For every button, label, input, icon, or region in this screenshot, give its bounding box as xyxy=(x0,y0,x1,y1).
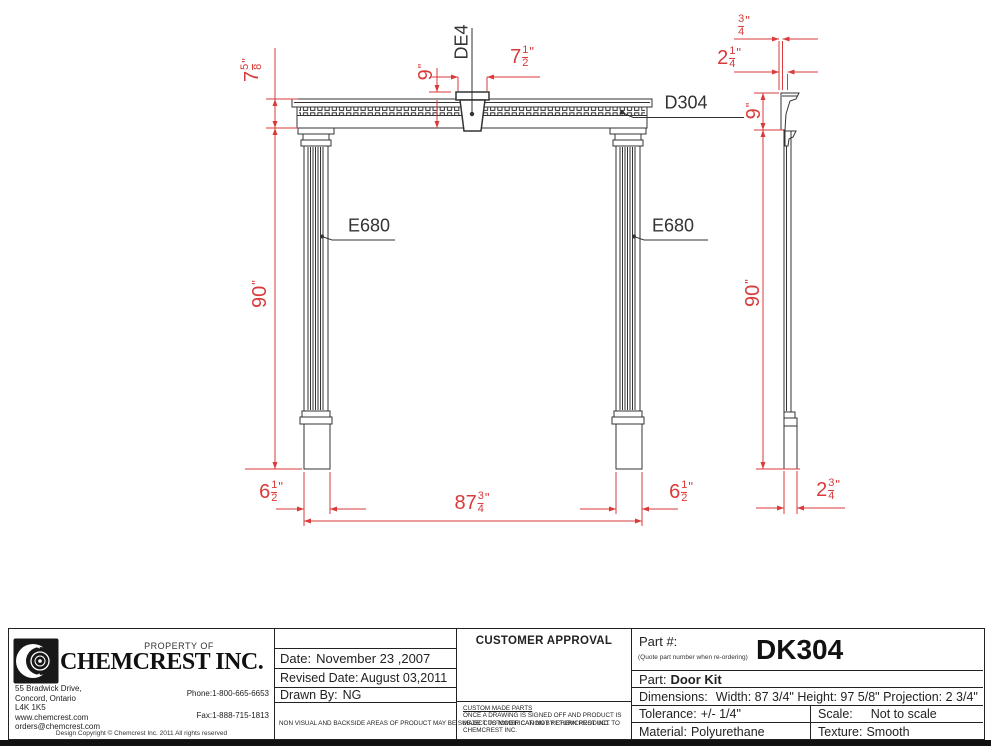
part-name-value: Door Kit xyxy=(670,672,721,687)
dim-side-top-offset: 34 " xyxy=(738,14,750,38)
company-phone: Phone:1-800-665-6653 xyxy=(187,689,269,698)
dim-plinth-width-right: 6 12 " xyxy=(669,480,693,504)
scale-value: Not to scale xyxy=(871,707,937,721)
dimensions-label: Dimensions: xyxy=(639,690,708,704)
texture-value: Smooth xyxy=(866,725,909,739)
company-panel: PROPERTY OF CHEMCREST INC. 55 Bradwick D… xyxy=(9,629,275,739)
dim-overall-width: 87 34 " xyxy=(455,491,490,515)
company-website: www.chemcrest.com xyxy=(15,713,100,723)
tolerance-scale-row: Tolerance: +/- 1/4" Scale: Not to scale xyxy=(632,705,983,722)
side-profile xyxy=(781,93,799,469)
texture-label: Texture: xyxy=(818,725,862,739)
dim-pilaster-height-front: 90 " xyxy=(250,280,270,308)
revised-date-row: Revised Date: August 03,2011 xyxy=(275,668,456,687)
custom-made-parts-text: ONCE A DRAWING IS SIGNED OFF AND PRODUCT… xyxy=(463,712,627,734)
title-block: PROPERTY OF CHEMCREST INC. 55 Bradwick D… xyxy=(8,628,985,740)
dim-side-projection: 2 34 " xyxy=(816,478,840,502)
material-label: Material: xyxy=(639,725,687,739)
company-name: CHEMCREST INC. xyxy=(60,649,263,676)
chemcrest-logo-icon xyxy=(13,638,59,684)
dim-side-crown-projection: 2 14 " xyxy=(717,46,741,70)
dim-pilaster-height-side: 90 " xyxy=(743,279,763,307)
label-keystone-de4: DE4 xyxy=(452,24,473,59)
customer-approval-panel: CUSTOMER APPROVAL CUSTOM MADE PARTS ONCE… xyxy=(457,629,632,739)
part-number-value: DK304 xyxy=(756,634,843,666)
drawn-by-label: Drawn By: xyxy=(280,688,338,702)
label-pilaster-e680-left: E680 xyxy=(348,216,390,237)
material-texture-row: Material: Polyurethane Texture: Smooth xyxy=(632,722,983,740)
revised-date-value: August 03,2011 xyxy=(361,671,448,685)
dim-keystone-width: 7 12 " xyxy=(510,45,534,69)
dim-plinth-width-left: 6 12 " xyxy=(259,480,283,504)
part-number-label: Part #: xyxy=(639,634,677,649)
dim-keystone-height: 9 " xyxy=(416,64,436,81)
scale-label: Scale: xyxy=(818,707,853,721)
dates-panel: Date: November 23 ,2007 Revised Date: Au… xyxy=(275,629,457,739)
custom-made-parts-title: CUSTOM MADE PARTS xyxy=(463,705,627,712)
date-label: Date: xyxy=(280,651,311,666)
tolerance-cell: Tolerance: +/- 1/4" xyxy=(632,706,811,722)
custom-made-parts-note: CUSTOM MADE PARTS ONCE A DRAWING IS SIGN… xyxy=(457,701,631,739)
customer-approval-title: CUSTOMER APPROVAL xyxy=(457,635,631,647)
tolerance-value: +/- 1/4" xyxy=(701,707,741,721)
address-line2: Concord, Ontario xyxy=(15,694,100,704)
scale-cell: Scale: Not to scale xyxy=(811,706,983,722)
address-line1: 55 Bradwick Drive, xyxy=(15,684,100,694)
part-label: Part: xyxy=(639,672,666,687)
texture-cell: Texture: Smooth xyxy=(811,723,983,740)
company-fax: Fax:1-888-715-1813 xyxy=(197,711,270,720)
dim-header-height: 7 58 " xyxy=(240,58,264,82)
dim-side-header-height: 9 " xyxy=(744,103,764,120)
copyright-line: Design Copyright © Chemcrest Inc. 2011 A… xyxy=(9,730,274,737)
drawing-sheet: DE4 D304 E680 E680 7 58 " 9 " 7 12 " 34 … xyxy=(0,0,991,746)
door-kit-technical-drawing xyxy=(0,0,991,625)
date-value: November 23 ,2007 xyxy=(316,651,430,666)
drawn-by-row: Drawn By: NG xyxy=(275,687,456,702)
date-row: Date: November 23 ,2007 xyxy=(275,648,456,668)
drawn-by-value: NG xyxy=(343,688,362,702)
dimensions-value: Width: 87 3/4" Height: 97 5/8" Projectio… xyxy=(716,690,978,704)
part-number-hint: (Quote part number when re-ordering) xyxy=(638,654,748,661)
material-value: Polyurethane xyxy=(691,725,765,739)
company-address: 55 Bradwick Drive, Concord, Ontario L4K … xyxy=(15,684,100,732)
revised-date-label: Revised Date: xyxy=(280,671,359,685)
part-number-row: Part #: (Quote part number when re-order… xyxy=(632,629,983,670)
part-name-row: Part: Door Kit xyxy=(632,670,983,687)
address-line3: L4K 1K5 xyxy=(15,703,100,713)
part-info-panel: Part #: (Quote part number when re-order… xyxy=(632,629,983,739)
tolerance-label: Tolerance: xyxy=(639,707,697,721)
dimensions-row: Dimensions: Width: 87 3/4" Height: 97 5/… xyxy=(632,687,983,705)
label-dentil-d304: D304 xyxy=(664,93,707,114)
label-pilaster-e680-right: E680 xyxy=(652,216,694,237)
sheet-bottom-bar xyxy=(0,740,991,746)
material-cell: Material: Polyurethane xyxy=(632,723,811,740)
modification-note-row: NON VISUAL AND BACKSIDE AREAS OF PRODUCT… xyxy=(275,702,456,739)
